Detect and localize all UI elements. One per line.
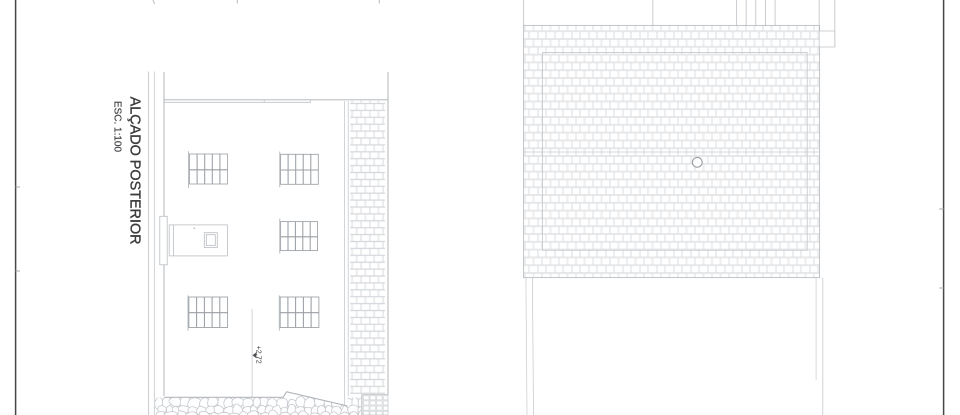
svg-text:ALÇADO POSTERIOR: ALÇADO POSTERIOR xyxy=(127,97,143,245)
svg-text:+2.72: +2.72 xyxy=(254,346,263,364)
svg-text:ESC. 1:100: ESC. 1:100 xyxy=(112,101,123,153)
